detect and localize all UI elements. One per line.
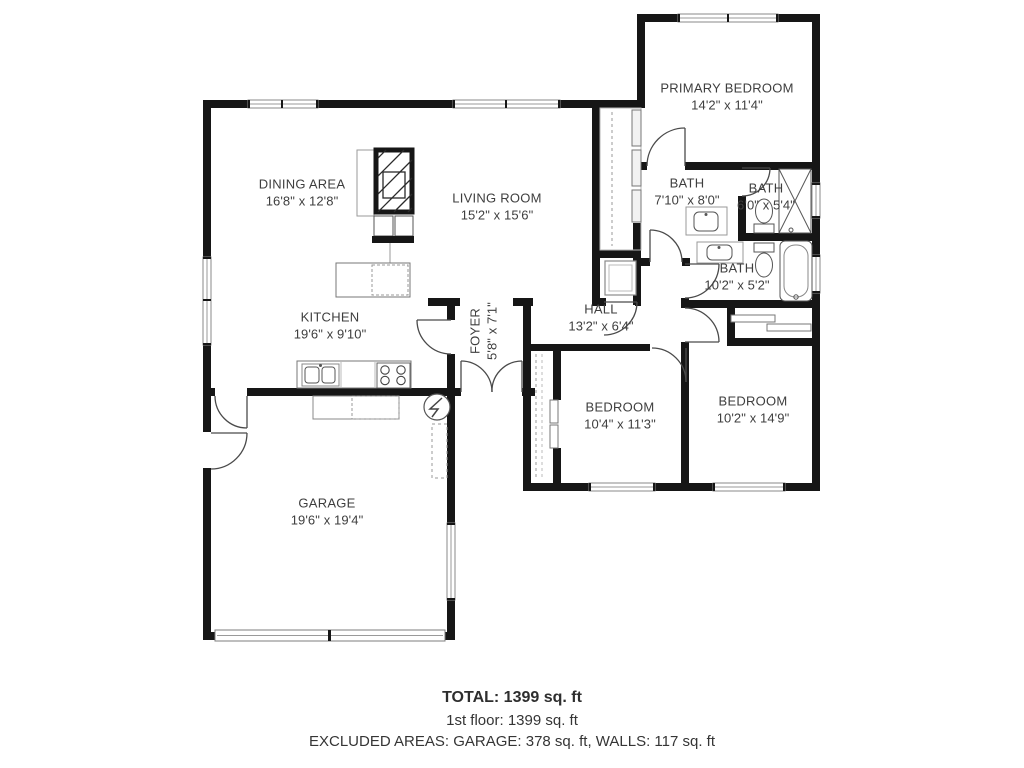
room-label-garage: GARAGE 19'6" x 19'4" (291, 495, 364, 528)
area-summary: TOTAL: 1399 sq. ft 1st floor: 1399 sq. f… (0, 687, 1024, 752)
primary-suite-door (647, 128, 685, 166)
excluded-areas-text: EXCLUDED AREAS: GARAGE: 378 sq. ft, WALL… (0, 731, 1024, 752)
vanity-sink-icon (686, 207, 743, 263)
fireplace-icon (336, 150, 414, 297)
room-label-bath1: BATH 7'10" x 8'0" (654, 175, 719, 208)
bedroom2-closet (731, 315, 811, 331)
kitchen-counter (297, 361, 411, 388)
bedroom2-door (685, 308, 719, 342)
bedroom1-door (652, 348, 686, 382)
bathtub-icon (780, 241, 812, 301)
garage-dashed-area (432, 424, 447, 478)
first-floor-area-text: 1st floor: 1399 sq. ft (0, 710, 1024, 731)
room-label-kitchen: KITCHEN 19'6" x 9'10" (294, 309, 367, 342)
total-area-text: TOTAL: 1399 sq. ft (0, 687, 1024, 710)
front-entry-double-door (461, 361, 522, 392)
water-heater-icon (424, 394, 450, 420)
garage-door-icon (215, 630, 445, 641)
closet-sliding-doors-icon (632, 110, 641, 222)
room-label-living: LIVING ROOM 15'2" x 15'6" (452, 190, 541, 223)
floor-plan-page: DINING AREA 16'8" x 12'8" LIVING ROOM 15… (0, 0, 1024, 768)
room-label-hall: HALL 13'2" x 6'4" (568, 301, 633, 334)
room-label-bath2: BATH 6'0" x 5'4" (737, 180, 795, 213)
room-label-foyer: FOYER 5'8" x 7'1" (467, 302, 500, 360)
bath1-door (650, 230, 682, 262)
kitchen-foyer-door (417, 320, 451, 354)
room-label-bath3: BATH 10'2" x 5'2" (704, 260, 769, 293)
room-label-bedroom2: BEDROOM 10'2" x 14'9" (717, 393, 790, 426)
room-label-primary-bedroom: PRIMARY BEDROOM 14'2" x 11'4" (660, 80, 793, 113)
stove-icon (377, 363, 410, 388)
washer-icon (605, 261, 636, 295)
workbench (313, 396, 399, 419)
kitchen-garage-door (215, 396, 247, 428)
room-label-dining: DINING AREA 16'8" x 12'8" (259, 176, 346, 209)
room-label-bedroom1: BEDROOM 10'4" x 11'3" (584, 399, 656, 432)
garage-side-door (211, 433, 247, 469)
floor-plan-drawing (0, 0, 1024, 768)
